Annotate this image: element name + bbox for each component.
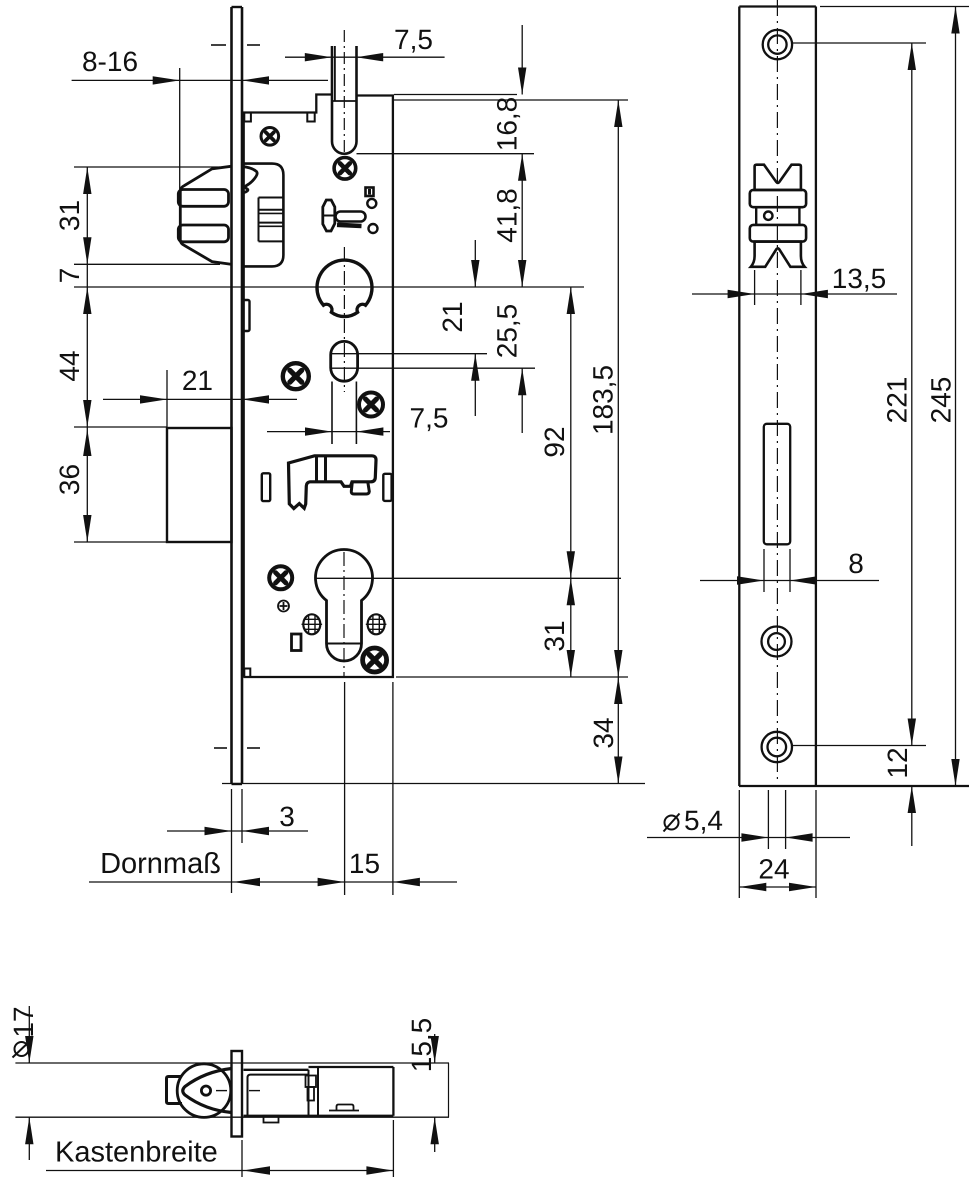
svg-text:7,5: 7,5 [410, 403, 449, 434]
svg-text:15,5: 15,5 [406, 1018, 437, 1073]
svg-text:24: 24 [758, 854, 789, 885]
svg-text:Kastenbreite: Kastenbreite [55, 1137, 218, 1169]
svg-text:25,5: 25,5 [492, 304, 523, 359]
svg-text:34: 34 [588, 717, 619, 748]
svg-text:15: 15 [349, 848, 380, 879]
svg-text:3: 3 [279, 801, 295, 832]
svg-text:12: 12 [882, 747, 913, 778]
svg-text:31: 31 [539, 620, 570, 651]
svg-text:92: 92 [539, 426, 570, 457]
svg-text:7: 7 [54, 268, 85, 284]
svg-text:44: 44 [54, 350, 85, 381]
svg-text:183,5: 183,5 [588, 365, 619, 435]
svg-text:17: 17 [8, 1006, 39, 1037]
svg-text:36: 36 [54, 464, 85, 495]
svg-text:7,5: 7,5 [394, 24, 433, 55]
svg-text:5,4: 5,4 [684, 805, 723, 836]
svg-text:13,5: 13,5 [832, 263, 887, 294]
svg-text:Dornmaß: Dornmaß [100, 848, 221, 880]
svg-text:21: 21 [437, 301, 468, 332]
svg-text:31: 31 [54, 200, 85, 231]
svg-text:16,8: 16,8 [492, 97, 523, 152]
svg-text:8-16: 8-16 [82, 46, 138, 77]
svg-text:245: 245 [926, 377, 957, 424]
svg-text:8: 8 [848, 548, 864, 579]
svg-text:21: 21 [182, 365, 213, 396]
svg-text:41,8: 41,8 [492, 188, 523, 243]
svg-text:221: 221 [882, 377, 913, 424]
